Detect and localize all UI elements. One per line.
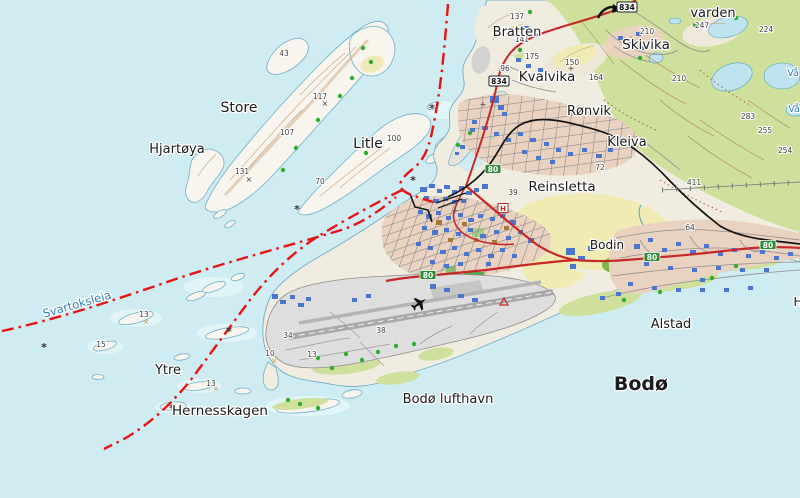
svg-text:×: × <box>143 318 149 326</box>
place-label-kvalvika: Kvalvika <box>519 69 575 85</box>
elevation-label: 254 <box>778 146 793 155</box>
elevation-label: 175 <box>525 52 540 61</box>
elevation-label: 96 <box>500 64 510 73</box>
road-shield-80: 80 <box>760 241 776 250</box>
hospital-icon: H <box>498 204 508 214</box>
place-label-hernesskagen: Hernesskagen <box>172 403 268 419</box>
shield-number: 80 <box>647 253 657 262</box>
elevation-label: 255 <box>758 126 773 135</box>
svg-text:×: × <box>246 175 253 184</box>
place-label-rønvik: Rønvik <box>567 104 612 119</box>
elevation-label: 15 <box>96 340 106 349</box>
place-label-vå: Vå <box>788 104 800 115</box>
shield-number: 80 <box>423 271 433 280</box>
place-label-hjartøya: Hjartøya <box>149 142 204 157</box>
elevation-label: 210 <box>672 74 687 83</box>
place-label-skivika: Skivika <box>622 37 670 53</box>
road-shield-80: 80 <box>485 165 501 174</box>
road-shield-834: 834 <box>617 2 637 12</box>
elevation-label: 10 <box>265 349 275 358</box>
place-label-varden: varden <box>690 6 735 21</box>
elevation-label: 100 <box>387 134 402 143</box>
place-label-h: H <box>793 295 800 309</box>
elevation-label: 64 <box>685 223 695 232</box>
place-label-bodø-lufthavn: Bodø lufthavn <box>403 392 494 407</box>
topo-map-viewport[interactable]: H *** *** ××+ ++ ××× 80808080834834 4311… <box>0 0 800 498</box>
elevation-label: 43 <box>279 49 289 58</box>
elevation-label: 137 <box>510 12 525 21</box>
elevation-label: 13 <box>139 310 149 319</box>
svg-text:+: + <box>452 206 459 215</box>
svg-text:*: * <box>41 341 47 354</box>
shield-number: 80 <box>488 165 498 174</box>
shield-number: 834 <box>491 77 507 86</box>
elevation-label: 39 <box>508 188 518 197</box>
road-shield-80: 80 <box>644 253 660 262</box>
elevation-label: 70 <box>315 177 325 186</box>
svg-text:×: × <box>271 357 277 365</box>
place-label-litle: Litle <box>353 136 383 152</box>
shield-number: 80 <box>763 241 773 250</box>
elevation-label: 283 <box>741 112 756 121</box>
elevation-label: 13 <box>206 379 216 388</box>
place-label-vå: Vå <box>787 68 799 79</box>
elevation-label: 107 <box>280 128 295 137</box>
svg-text:*: * <box>429 102 435 115</box>
place-label-ytre: Ytre <box>154 363 181 378</box>
place-label-reinsletta: Reinsletta <box>528 179 595 195</box>
svg-text:+: + <box>480 100 487 109</box>
svg-text:*: * <box>294 203 300 216</box>
road-shield-80: 80 <box>420 271 436 280</box>
place-label-bratten: Bratten <box>493 25 542 40</box>
svg-text:*: * <box>226 325 232 338</box>
elevation-label: 131 <box>235 167 250 176</box>
hospital-letter: H <box>500 205 506 213</box>
place-label-kleiva: Kleiva <box>607 135 646 150</box>
svg-text:*: * <box>410 174 416 187</box>
elevation-label: 411 <box>687 178 702 187</box>
place-label-alstad: Alstad <box>651 317 692 332</box>
elevation-label: 38 <box>376 326 386 335</box>
elevation-label: 150 <box>565 58 580 67</box>
place-label-bodø: Bodø <box>614 373 668 395</box>
elevation-label: 117 <box>313 92 328 101</box>
lake <box>669 18 681 24</box>
elevation-label: 247 <box>695 21 710 30</box>
elevation-label: 13 <box>307 350 317 359</box>
elevation-label: 210 <box>640 27 655 36</box>
shield-number: 834 <box>619 3 635 12</box>
elevation-label: 72 <box>595 163 605 172</box>
map-canvas[interactable]: H *** *** ××+ ++ ××× 80808080834834 4311… <box>0 0 800 498</box>
road-shield-834: 834 <box>489 76 509 86</box>
elevation-label: 164 <box>589 73 604 82</box>
elevation-label: 224 <box>759 25 774 34</box>
place-label-store: Store <box>220 100 257 116</box>
place-label-bodin: Bodin <box>590 238 624 252</box>
elevation-label: 34 <box>283 331 293 340</box>
